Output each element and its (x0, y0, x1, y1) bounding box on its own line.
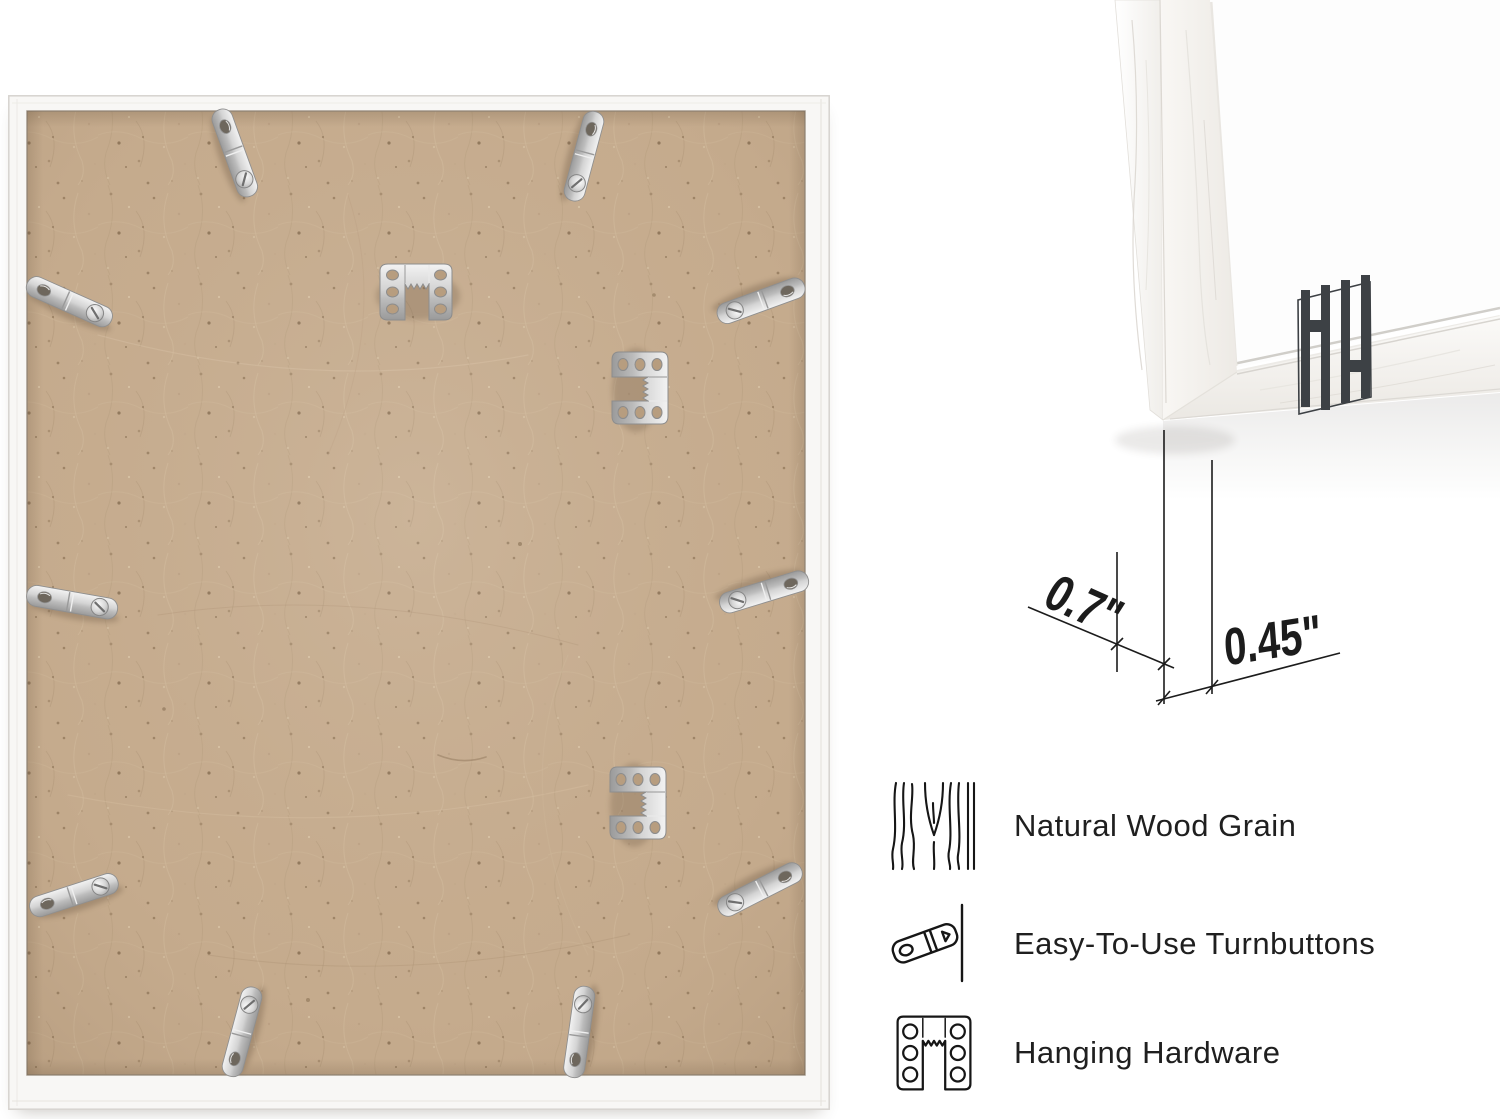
frame-back-illustration (8, 95, 830, 1110)
feature-row-hanging-hardware: Hanging Hardware (888, 1011, 1280, 1095)
frame-mat (1210, 0, 1500, 376)
feature-label: Easy-To-Use Turnbuttons (1014, 926, 1375, 962)
sawtooth-hanger (610, 763, 666, 847)
sawtooth-hanger (376, 264, 460, 320)
mdf-backing-board (27, 111, 805, 1075)
wood-grain-icon (888, 781, 980, 871)
feature-label: Natural Wood Grain (1014, 808, 1296, 844)
turnbutton-icon (888, 903, 980, 985)
feature-row-wood-grain: Natural Wood Grain (888, 781, 1296, 871)
dimension-face-width-label: 0.45" (1222, 604, 1323, 677)
dimension-depth-label: 0.7" (1035, 564, 1133, 645)
frame-back-photo (8, 95, 830, 1110)
frame-corner-illustration: 0.7" 0.45" (1000, 0, 1500, 720)
product-infographic: 0.7" 0.45" Nat (0, 0, 1500, 1119)
sawtooth-hanger (612, 348, 668, 432)
frame-corner-photo: 0.7" 0.45" (1000, 0, 1500, 720)
feature-label: Hanging Hardware (1014, 1035, 1280, 1071)
corner-tip-shadow (1115, 426, 1235, 454)
feature-row-turnbuttons: Easy-To-Use Turnbuttons (888, 903, 1375, 985)
hanging-hardware-icon (888, 1011, 980, 1095)
